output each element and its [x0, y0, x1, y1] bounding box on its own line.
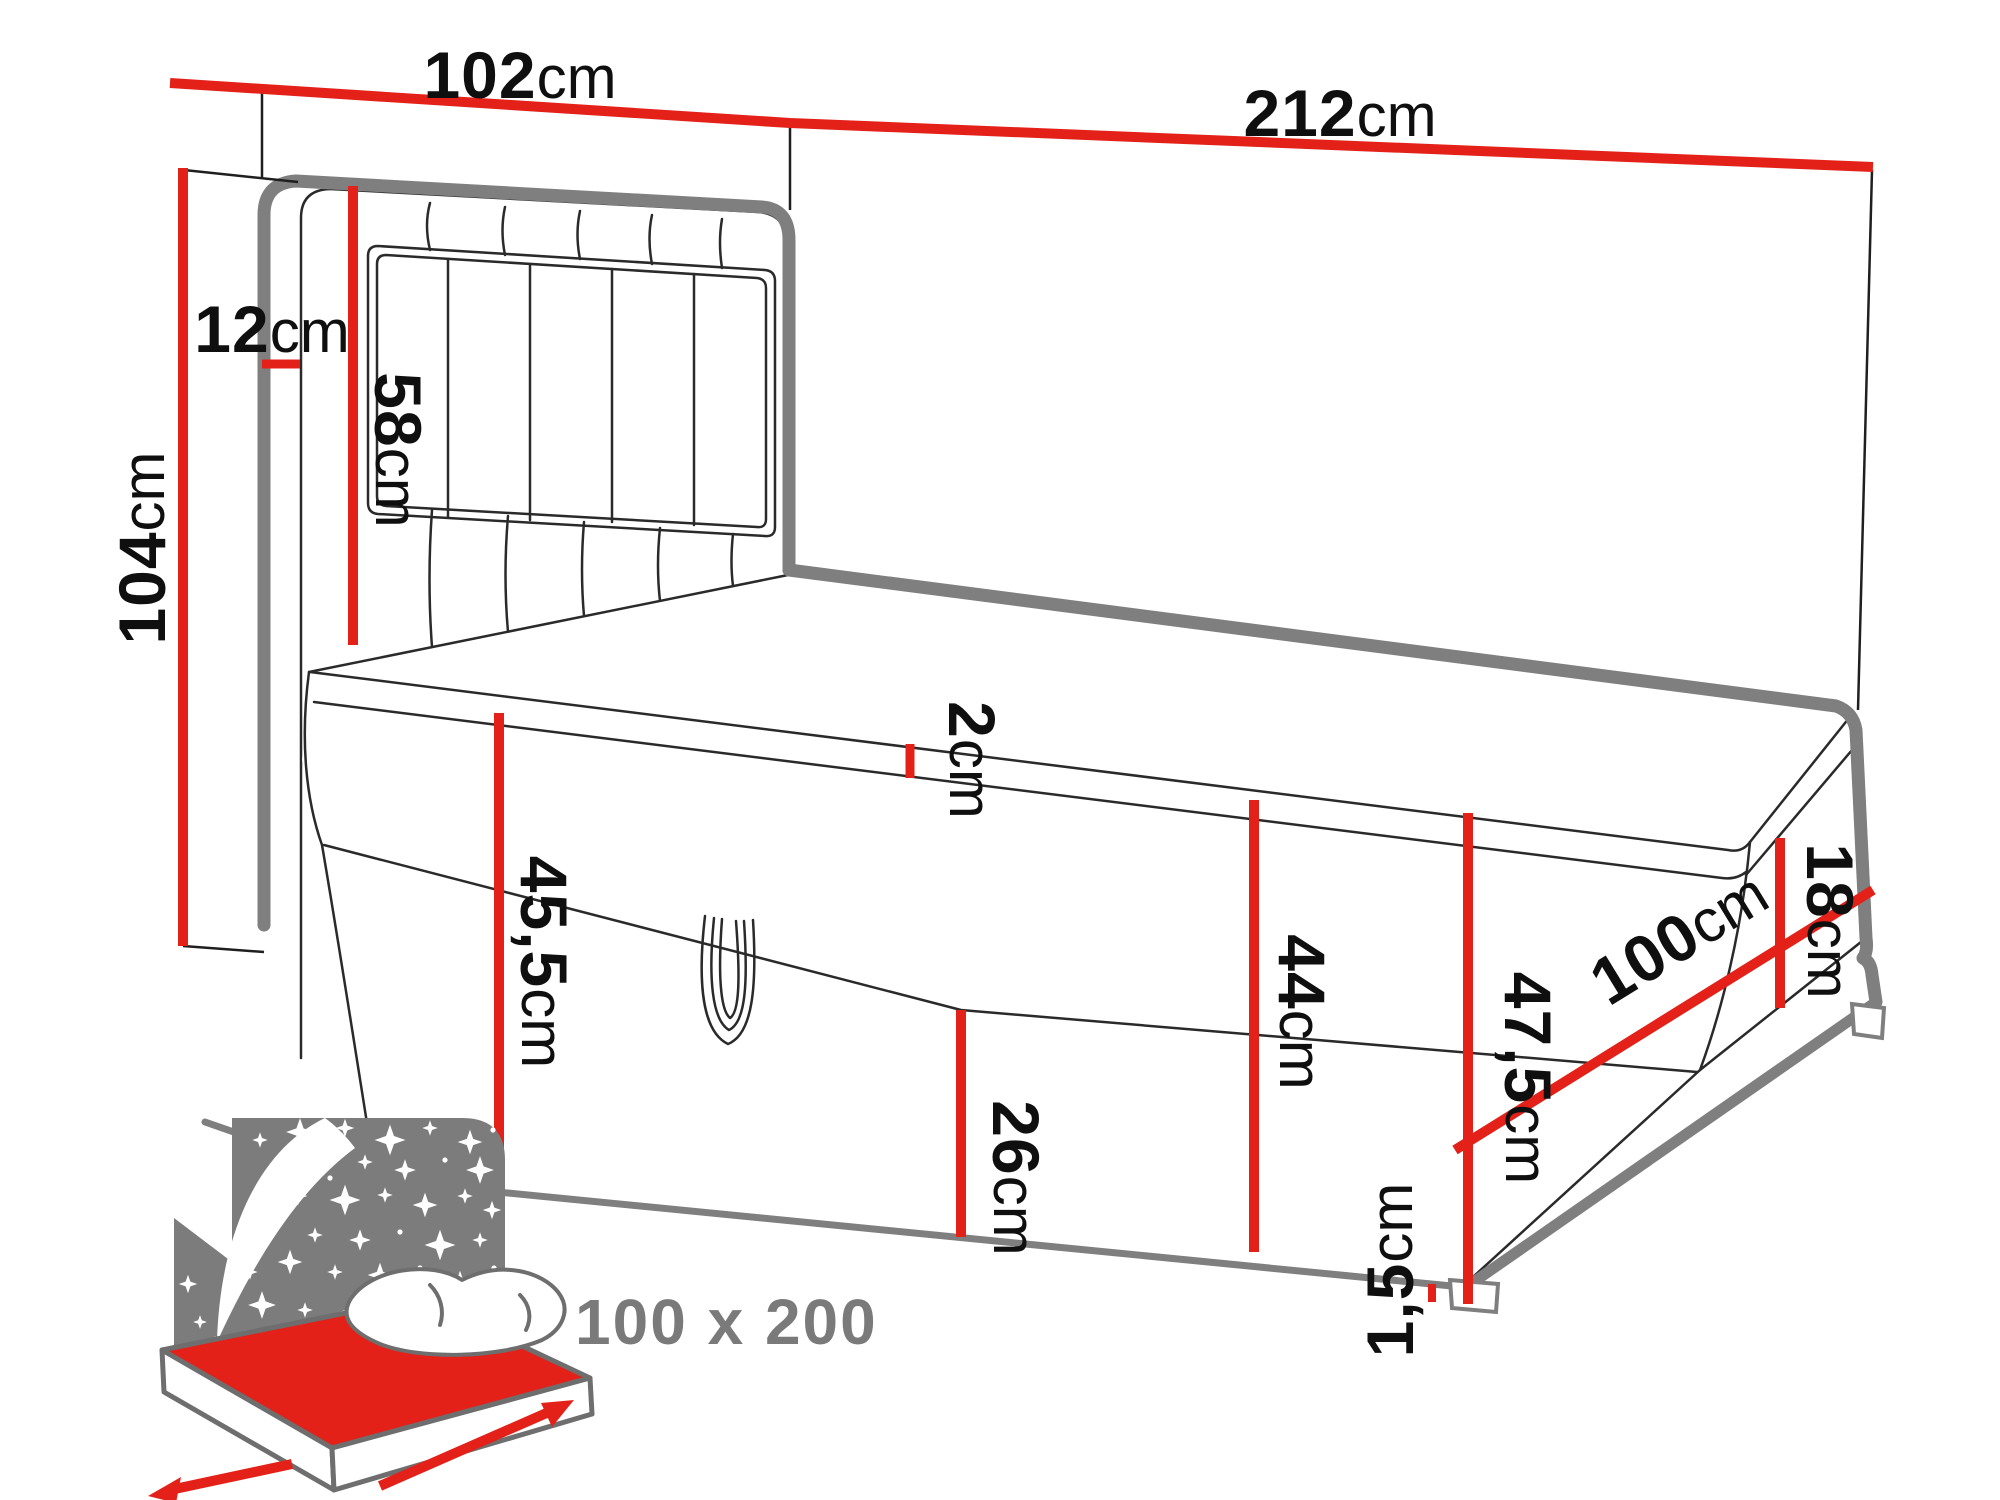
label-headboard-above-mattress: 58cm: [361, 372, 435, 527]
label-headboard-width: 102cm: [423, 38, 616, 112]
star-glyph: [490, 1127, 495, 1132]
star-glyph: [397, 1229, 402, 1234]
bed-dimension-diagram-page: 102cm 212cm 104cm 12cm 58cm 2cm 45,5cm 2…: [0, 0, 2000, 1500]
label-total-height: 104cm: [105, 451, 179, 644]
icon-size-caption: 100 x 200: [575, 1286, 878, 1358]
bed-foot-front: [1450, 1280, 1498, 1312]
label-storage-front-height: 26cm: [979, 1100, 1053, 1255]
star-glyph: [327, 1175, 332, 1180]
label-mattress-thickness: 18cm: [1793, 843, 1867, 998]
floor-extension-line: [183, 946, 264, 952]
bed-dimension-diagram: 102cm 212cm 104cm 12cm 58cm 2cm 45,5cm 2…: [0, 0, 2000, 1500]
label-total-length: 212cm: [1243, 76, 1436, 150]
label-foot-end-height: 47,5cm: [1491, 972, 1565, 1184]
label-feet-height: 1,5cm: [1353, 1183, 1427, 1358]
bed-foot-back: [1852, 1004, 1884, 1038]
label-headboard-depth: 12cm: [194, 292, 349, 366]
icon-pillows: [347, 1269, 565, 1355]
star-glyph: [442, 1157, 447, 1162]
extension-line: [184, 170, 298, 182]
label-base-box-height: 44cm: [1265, 934, 1339, 1089]
label-side-height: 45,5cm: [507, 856, 581, 1068]
label-topper-thickness: 2cm: [935, 701, 1009, 819]
extension-line: [1858, 170, 1872, 710]
